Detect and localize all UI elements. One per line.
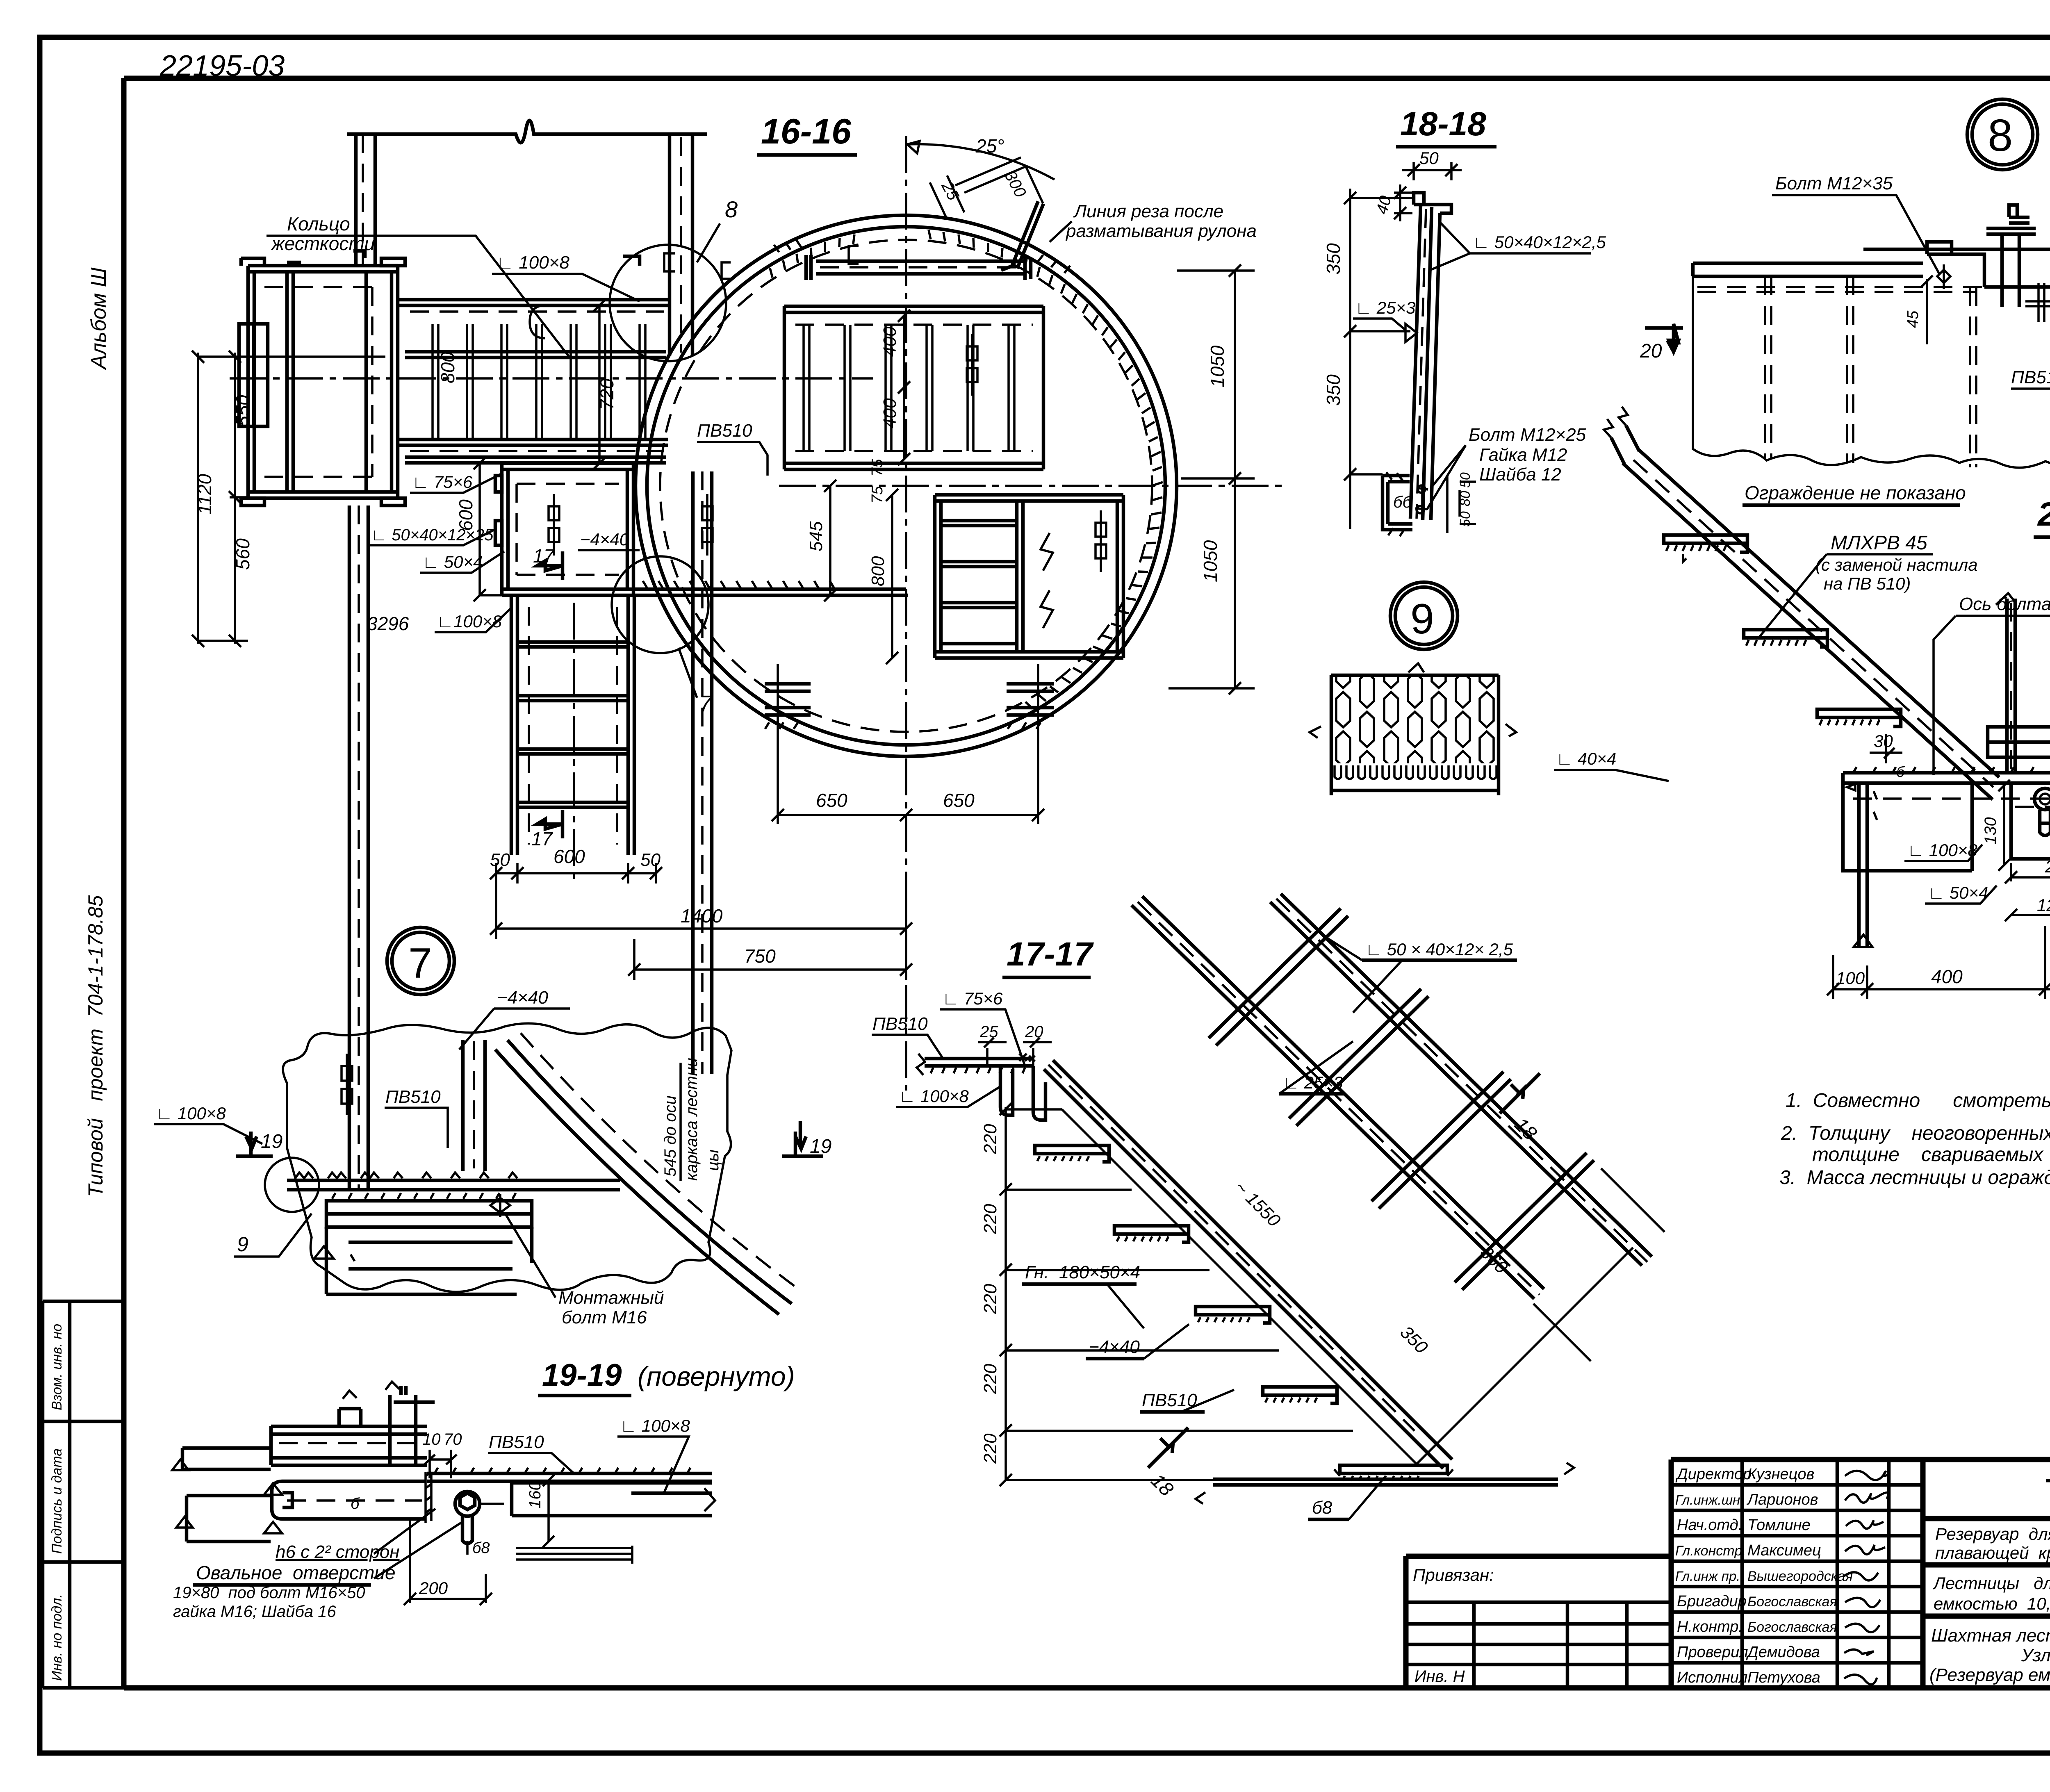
svg-text:Гайка М12: Гайка М12 bbox=[1479, 445, 1567, 465]
svg-text:∟ 25×3: ∟ 25×3 bbox=[1355, 298, 1415, 317]
svg-text:∟100×8: ∟100×8 bbox=[437, 612, 502, 631]
svg-text:Исполнил: Исполнил bbox=[1677, 1669, 1747, 1686]
svg-text:25°: 25° bbox=[975, 135, 1004, 157]
svg-text:30: 30 bbox=[1874, 731, 1893, 751]
svg-text:∟ 75×6: ∟ 75×6 bbox=[412, 472, 473, 492]
svg-text:Овальное отверстие: Овальное отверстие bbox=[196, 1562, 396, 1583]
svg-text:Гл.инж пр.: Гл.инж пр. bbox=[1675, 1569, 1740, 1584]
svg-text:(повернуто): (повернуто) bbox=[638, 1361, 795, 1391]
svg-text:ПВ510: ПВ510 bbox=[2011, 367, 2050, 387]
svg-text:19: 19 bbox=[810, 1136, 831, 1157]
svg-text:∟ 75×6: ∟ 75×6 bbox=[942, 989, 1003, 1008]
svg-text:Петухова: Петухова bbox=[1747, 1669, 1820, 1686]
svg-text:Бригадир: Бригадир bbox=[1677, 1593, 1747, 1610]
svg-text:50: 50 bbox=[490, 850, 510, 870]
svg-text:∟ 100×8: ∟ 100×8 bbox=[156, 1104, 226, 1123]
svg-text:17-17: 17-17 bbox=[1007, 936, 1094, 973]
svg-text:Томлине: Томлине bbox=[1747, 1516, 1811, 1534]
svg-text:16-16: 16-16 bbox=[761, 112, 852, 151]
svg-text:емкостью 10,20 и 40 тыс. м³: емкостью 10,20 и 40 тыс. м³ bbox=[1934, 1594, 2050, 1613]
svg-text:20: 20 bbox=[1640, 340, 1662, 362]
svg-text:Богославская: Богославская bbox=[1747, 1619, 1837, 1635]
svg-text:Резервуар для светлых нефте: Резервуар для светлых нефтепродуктов с bbox=[1935, 1524, 2050, 1544]
svg-text:Гл.констр.: Гл.констр. bbox=[1675, 1543, 1746, 1559]
svg-text:220: 220 bbox=[980, 1364, 1000, 1394]
svg-text:Взом. инв. но: Взом. инв. но bbox=[49, 1324, 65, 1410]
svg-text:3. Масса лестницы и ограждени: 3. Масса лестницы и ограждения - 5.86т bbox=[1779, 1167, 2050, 1189]
svg-text:Кузнецов: Кузнецов bbox=[1747, 1466, 1814, 1483]
svg-text:б8: б8 bbox=[472, 1539, 490, 1557]
svg-text:19-19: 19-19 bbox=[542, 1358, 622, 1393]
svg-text:75: 75 bbox=[869, 459, 886, 476]
svg-text:∟ 50 × 40×12× 2,5: ∟ 50 × 40×12× 2,5 bbox=[1365, 940, 1513, 959]
svg-text:70: 70 bbox=[444, 1430, 462, 1448]
svg-text:Вышегородская: Вышегородская bbox=[1747, 1569, 1853, 1584]
svg-text:3296: 3296 bbox=[367, 613, 409, 634]
svg-text:1400: 1400 bbox=[681, 905, 723, 927]
svg-text:Кольцо: Кольцо bbox=[287, 213, 350, 235]
svg-text:Типовой проект 704-1-178.85: Типовой проект 704-1-178.85 bbox=[84, 895, 107, 1197]
svg-text:400: 400 bbox=[1931, 966, 1963, 987]
svg-text:8: 8 bbox=[725, 196, 738, 222]
svg-text:∟ 50×40×12×25: ∟ 50×40×12×25 bbox=[371, 526, 494, 544]
svg-text:7: 7 bbox=[699, 690, 713, 716]
svg-text:Шахтная лестница с переходом.: Шахтная лестница с переходом. bbox=[1931, 1626, 2050, 1646]
svg-text:∟ 100×8: ∟ 100×8 bbox=[496, 253, 569, 273]
svg-text:750: 750 bbox=[744, 945, 776, 967]
svg-text:Узлы: Узлы bbox=[2021, 1645, 2050, 1665]
svg-text:∟ 25×3: ∟ 25×3 bbox=[1282, 1073, 1343, 1092]
svg-text:Ларионов: Ларионов bbox=[1746, 1491, 1818, 1508]
svg-text:10: 10 bbox=[422, 1430, 441, 1448]
svg-text:545 до оси: 545 до оси bbox=[661, 1095, 679, 1177]
svg-text:Инв. Н: Инв. Н bbox=[1414, 1667, 1465, 1685]
svg-text:125: 125 bbox=[2037, 895, 2050, 915]
svg-text:∟ 50×4: ∟ 50×4 bbox=[1928, 883, 1988, 902]
svg-text:−4×40: −4×40 bbox=[497, 988, 548, 1008]
svg-text:−4×40: −4×40 bbox=[580, 530, 629, 549]
svg-text:19×80 под болт М16×50: 19×80 под болт М16×50 bbox=[173, 1584, 365, 1602]
svg-text:бб: бб bbox=[1393, 493, 1412, 511]
svg-text:350: 350 bbox=[1323, 243, 1344, 275]
svg-text:220: 220 bbox=[980, 1284, 1000, 1314]
svg-text:на ПВ 510): на ПВ 510) bbox=[1824, 574, 1911, 593]
svg-text:8: 8 bbox=[1988, 110, 2013, 161]
svg-text:20-20: 20-20 bbox=[2037, 496, 2050, 533]
svg-text:20: 20 bbox=[1025, 1023, 1043, 1041]
svg-text:цы: цы bbox=[704, 1150, 722, 1171]
svg-text:19: 19 bbox=[261, 1131, 282, 1152]
svg-text:ПВ510: ПВ510 bbox=[385, 1087, 441, 1107]
svg-text:400: 400 bbox=[880, 398, 900, 428]
svg-text:Монтажный: Монтажный bbox=[558, 1288, 664, 1308]
svg-text:18-18: 18-18 bbox=[1400, 105, 1486, 143]
svg-text:350: 350 bbox=[1323, 374, 1344, 406]
svg-text:9: 9 bbox=[1410, 595, 1434, 643]
svg-text:200: 200 bbox=[2045, 857, 2050, 876]
svg-text:плавающей крышей емкостью 10: плавающей крышей емкостью 10 тыс. м³ bbox=[1935, 1543, 2050, 1562]
svg-text:∟ 40×4: ∟ 40×4 bbox=[1556, 749, 1616, 768]
svg-text:ПВ510: ПВ510 bbox=[872, 1014, 928, 1034]
svg-text:∟ 100×8: ∟ 100×8 bbox=[1907, 840, 1977, 860]
svg-text:Гл.инж.шн.: Гл.инж.шн. bbox=[1675, 1492, 1744, 1507]
svg-text:гайка М16; Шайба 16: гайка М16; Шайба 16 bbox=[173, 1603, 336, 1621]
svg-text:(Резервуар емк. 20,40 тыс.м³): (Резервуар емк. 20,40 тыс.м³) bbox=[1929, 1665, 2050, 1685]
svg-text:Инв. но подл.: Инв. но подл. bbox=[49, 1594, 65, 1681]
svg-text:45: 45 bbox=[1904, 310, 1922, 328]
svg-text:ПВ510: ПВ510 bbox=[1142, 1390, 1197, 1410]
svg-text:ПВ510: ПВ510 bbox=[697, 421, 752, 441]
svg-text:22195-03: 22195-03 bbox=[159, 50, 285, 82]
svg-text:Нач.отд.: Нач.отд. bbox=[1677, 1516, 1742, 1534]
svg-text:Богославская: Богославская bbox=[1747, 1594, 1837, 1610]
svg-text:Гн. 180×50×4: Гн. 180×50×4 bbox=[1025, 1262, 1140, 1282]
svg-text:130: 130 bbox=[1982, 817, 2000, 845]
svg-text:Привязан:: Привязан: bbox=[1413, 1565, 1494, 1585]
svg-text:Лестницы для резервуаров: Лестницы для резервуаров bbox=[1932, 1573, 2050, 1593]
svg-text:50: 50 bbox=[1458, 472, 1473, 488]
svg-text:Шайба 12: Шайба 12 bbox=[1479, 465, 1561, 485]
svg-text:Болт М12×35: Болт М12×35 bbox=[1775, 173, 1893, 194]
svg-text:800: 800 bbox=[437, 352, 458, 383]
svg-text:1120: 1120 bbox=[194, 474, 215, 515]
svg-text:Альбом Ш: Альбом Ш bbox=[87, 267, 111, 370]
svg-text:−4×40: −4×40 bbox=[1089, 1337, 1140, 1357]
svg-text:h6 с 2² сторон: h6 с 2² сторон bbox=[276, 1542, 400, 1562]
svg-text:650: 650 bbox=[816, 790, 847, 811]
svg-text:650: 650 bbox=[943, 790, 975, 811]
svg-text:(с заменой настила: (с заменой настила bbox=[1815, 555, 1978, 574]
svg-text:∟ 100×8: ∟ 100×8 bbox=[620, 1416, 690, 1435]
svg-text:Директор: Директор bbox=[1675, 1466, 1752, 1483]
svg-text:Н.контр.: Н.контр. bbox=[1677, 1618, 1743, 1635]
svg-text:160: 160 bbox=[526, 1481, 544, 1509]
svg-text:1. Совместно смотреть л: 1. Совместно смотреть листы 18÷24 bbox=[1786, 1090, 2050, 1111]
svg-text:560: 560 bbox=[232, 538, 253, 570]
svg-text:разматывания рулона: разматывания рулона bbox=[1065, 221, 1257, 241]
svg-text:704-1-178.85: 704-1-178.85 bbox=[2044, 1470, 2050, 1517]
svg-text:болт М16: болт М16 bbox=[562, 1307, 647, 1327]
svg-text:1050: 1050 bbox=[1200, 540, 1221, 582]
svg-text:∟ 100×8: ∟ 100×8 bbox=[899, 1086, 969, 1106]
svg-text:Демидова: Демидова bbox=[1746, 1644, 1820, 1661]
svg-text:720: 720 bbox=[596, 378, 617, 410]
svg-text:2. Толщину неоговоренных: 2. Толщину неоговоренных швов принимать … bbox=[1781, 1123, 2050, 1144]
svg-text:200: 200 bbox=[419, 1578, 448, 1598]
svg-text:Линия реза после: Линия реза после bbox=[1073, 201, 1223, 221]
svg-text:Подпись и дата: Подпись и дата bbox=[49, 1448, 65, 1554]
svg-text:50: 50 bbox=[640, 850, 661, 870]
svg-text:МЛХРВ 45: МЛХРВ 45 bbox=[1831, 532, 1927, 554]
svg-text:75: 75 bbox=[869, 486, 886, 503]
svg-text:100: 100 bbox=[1836, 968, 1865, 988]
svg-text:17: 17 bbox=[531, 828, 553, 849]
svg-text:Максимец: Максимец bbox=[1747, 1542, 1821, 1559]
svg-text:25: 25 bbox=[979, 1023, 998, 1041]
svg-text:545: 545 bbox=[806, 521, 826, 551]
svg-text:17: 17 bbox=[533, 545, 555, 567]
svg-text:800: 800 bbox=[868, 556, 888, 586]
svg-text:б: б bbox=[351, 1495, 360, 1512]
svg-text:ПВ510: ПВ510 bbox=[489, 1432, 544, 1452]
svg-text:Проверил: Проверил bbox=[1677, 1644, 1748, 1661]
svg-text:б8: б8 bbox=[1312, 1498, 1332, 1518]
svg-text:∟ 50×40×12×2,5: ∟ 50×40×12×2,5 bbox=[1473, 232, 1606, 252]
svg-text:550: 550 bbox=[232, 395, 253, 426]
svg-text:50: 50 bbox=[1458, 511, 1473, 527]
svg-text:9: 9 bbox=[237, 1233, 248, 1256]
svg-text:толщине свариваемых эле: толщине свариваемых элементов bbox=[1812, 1144, 2050, 1166]
svg-text:1050: 1050 bbox=[1207, 345, 1228, 387]
svg-text:600: 600 bbox=[553, 846, 585, 867]
svg-text:220: 220 bbox=[980, 1204, 1000, 1234]
svg-text:каркаса лестни-: каркаса лестни- bbox=[683, 1052, 701, 1181]
svg-text:Ограждение не показано: Ограждение не показано bbox=[1745, 482, 1966, 503]
svg-text:50: 50 bbox=[1419, 148, 1439, 168]
svg-text:400: 400 bbox=[880, 326, 900, 357]
svg-text:Болт М12×25: Болт М12×25 bbox=[1469, 425, 1586, 445]
svg-text:∟ 50×4: ∟ 50×4 bbox=[422, 552, 483, 572]
svg-text:7: 7 bbox=[408, 940, 432, 987]
svg-text:220: 220 bbox=[980, 1124, 1000, 1154]
svg-text:220: 220 bbox=[980, 1433, 1000, 1464]
svg-text:б: б bbox=[1896, 763, 1905, 780]
svg-text:80: 80 bbox=[1458, 491, 1473, 506]
